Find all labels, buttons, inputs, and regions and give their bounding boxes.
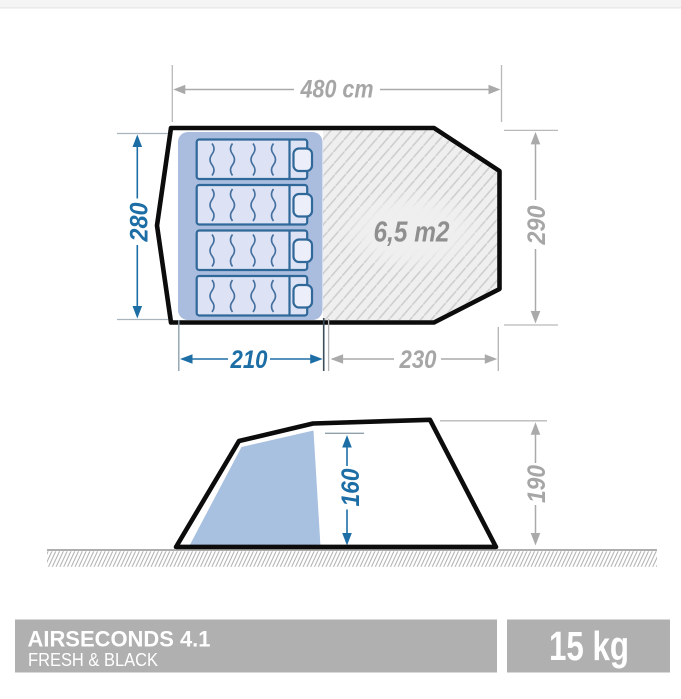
- svg-text:160: 160: [337, 468, 365, 506]
- svg-text:230: 230: [399, 346, 437, 374]
- svg-text:480 cm: 480 cm: [300, 76, 374, 104]
- svg-text:210: 210: [230, 346, 268, 374]
- svg-text:6,5 m2: 6,5 m2: [374, 217, 450, 249]
- svg-text:190: 190: [523, 465, 551, 503]
- svg-text:290: 290: [523, 205, 551, 245]
- svg-text:AIRSECONDS 4.1: AIRSECONDS 4.1: [28, 627, 211, 652]
- svg-text:280: 280: [125, 202, 153, 242]
- svg-text:15 kg: 15 kg: [549, 623, 629, 669]
- svg-text:FRESH & BLACK: FRESH & BLACK: [28, 650, 158, 670]
